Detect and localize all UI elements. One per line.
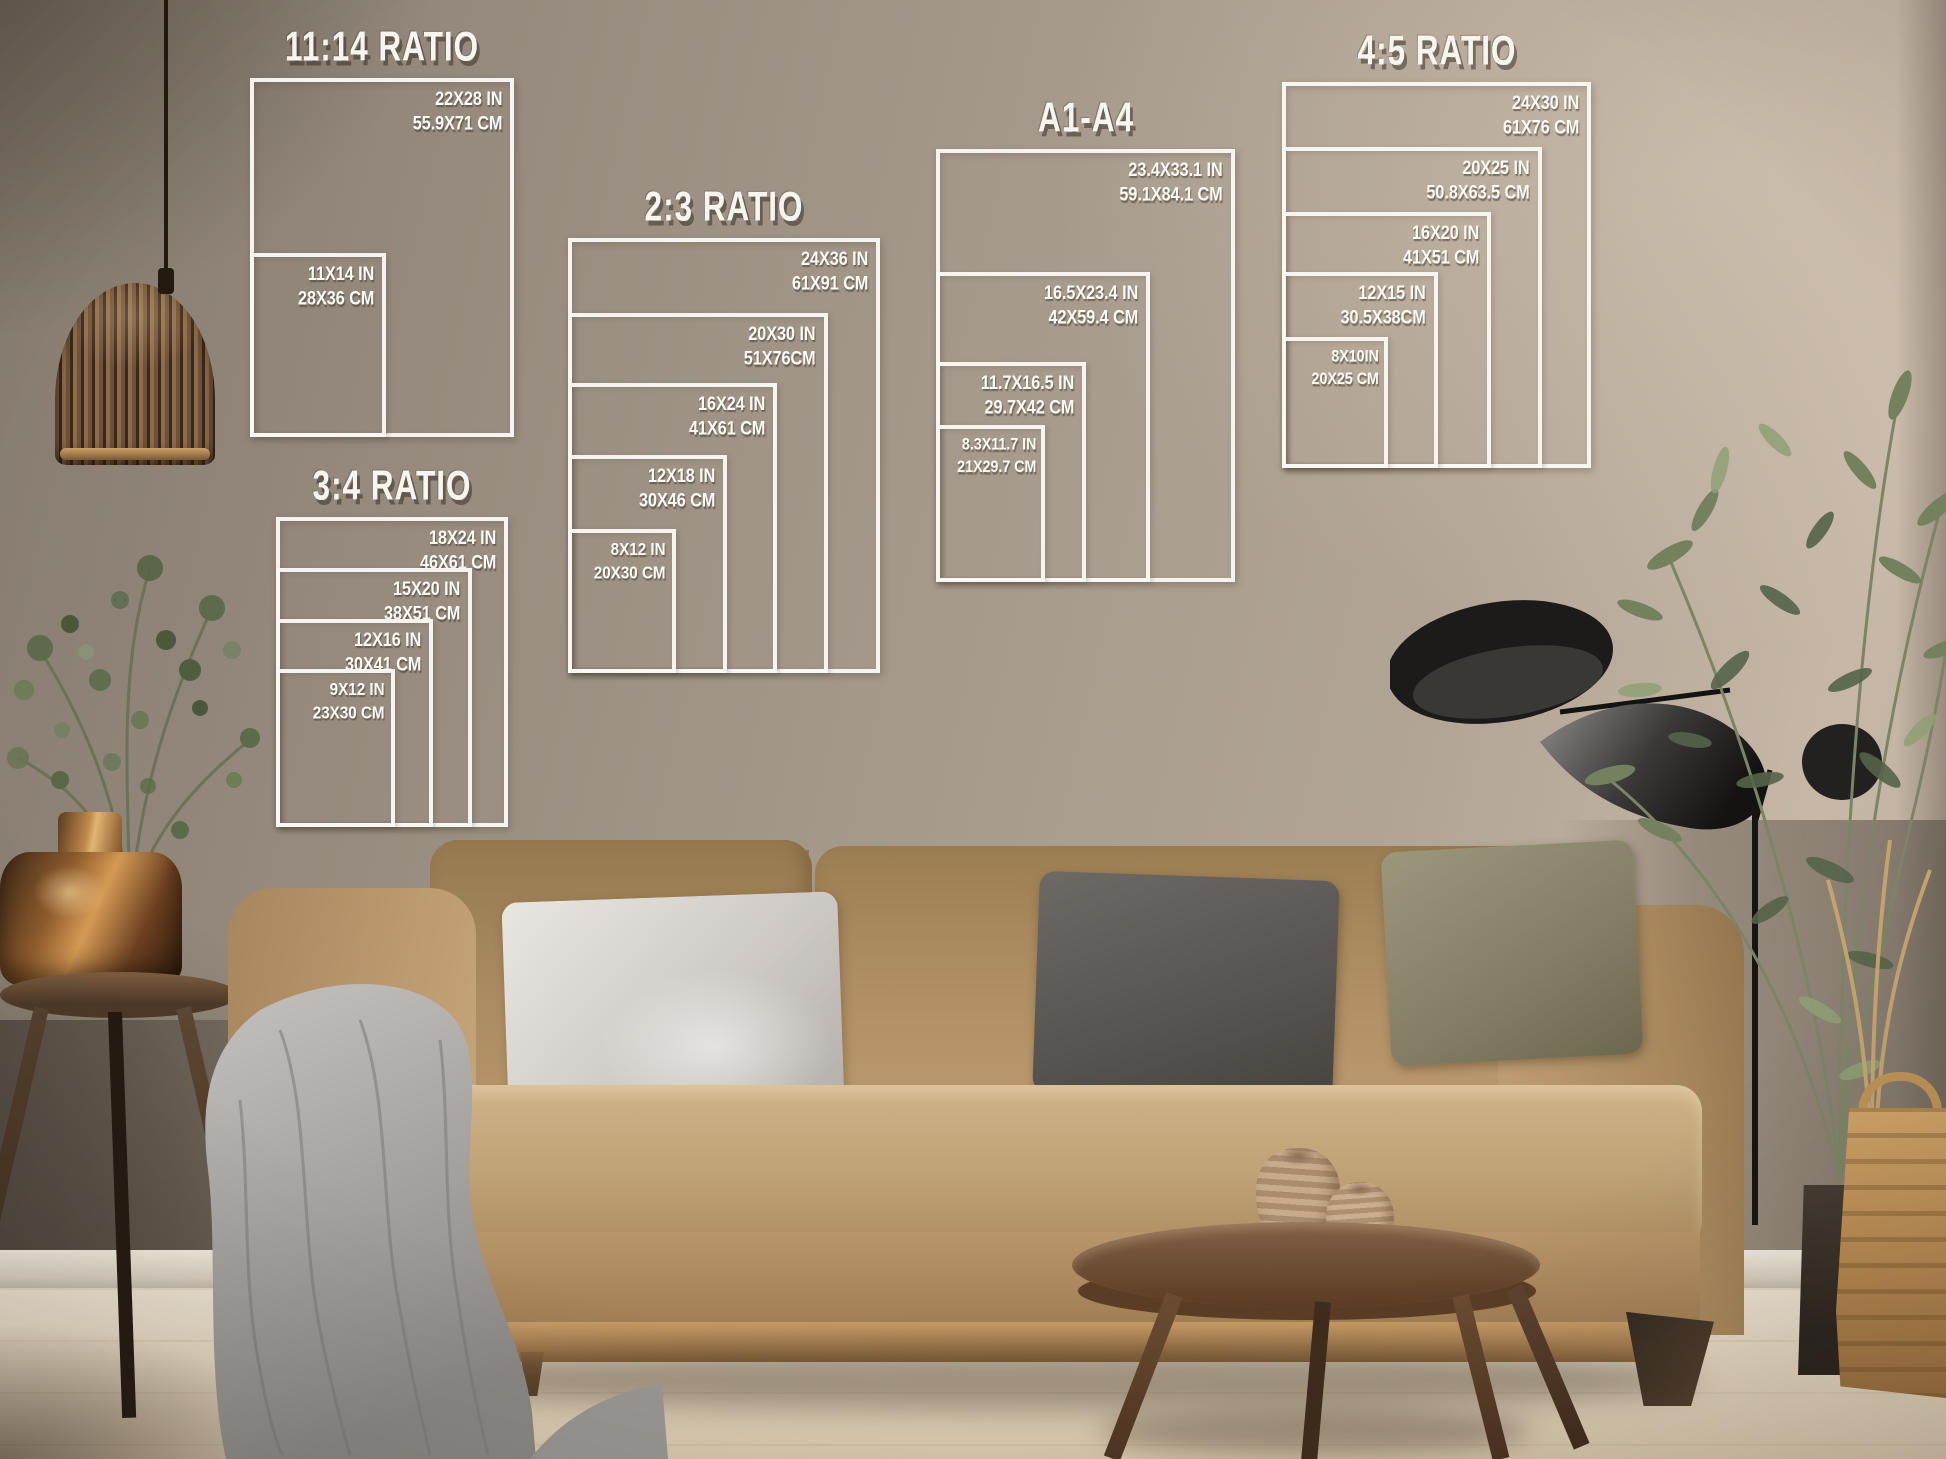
pillow-charcoal: [1032, 871, 1340, 1103]
size-label: 22X28 IN 55.9X71 CM: [412, 87, 502, 137]
pendant-shade-rim: [60, 448, 210, 460]
pendant-socket: [158, 268, 174, 294]
knit-blanket: [190, 950, 670, 1459]
size-label: 8X12 IN 20X30 CM: [594, 538, 666, 585]
chart-title: 4:5 RATIO: [1357, 28, 1516, 76]
living-room-scene: 11:14 RATIO 22X28 IN 55.9X71 CM 11X14 IN…: [0, 0, 1946, 1459]
size-label: 12X18 IN 30X46 CM: [639, 464, 715, 514]
size-label: 8X10IN 20X25 CM: [1312, 346, 1379, 390]
size-frame: 8X10IN 20X25 CM: [1282, 337, 1388, 468]
size-label: 11.7X16.5 IN 29.7X42 CM: [981, 371, 1074, 421]
size-label: 23.4X33.1 IN 59.1X84.1 CM: [1120, 158, 1223, 208]
pillow-olive: [1381, 840, 1644, 1067]
size-label: 20X25 IN 50.8X63.5 CM: [1427, 156, 1530, 206]
size-label: 24X36 IN 61X91 CM: [792, 247, 868, 297]
chart-title: 3:4 RATIO: [313, 463, 472, 511]
size-label: 16X20 IN 41X51 CM: [1403, 221, 1479, 271]
copper-vase-body: [0, 852, 182, 986]
size-label: 20X30 IN 51X76CM: [744, 322, 816, 372]
chart-ratio-2-3: 2:3 RATIO 24X36 IN 61X91 CM 20X30 IN 51X…: [568, 238, 880, 673]
size-label: 24X30 IN 61X76 CM: [1503, 91, 1579, 141]
chart-title: A1-A4: [1037, 95, 1133, 143]
woven-basket: [1836, 1108, 1946, 1398]
size-frame: 8.3X11.7 IN 21X29.7 CM: [936, 425, 1045, 582]
size-label: 11X14 IN 28X36 CM: [298, 262, 374, 312]
chart-a1-a4: A1-A4 23.4X33.1 IN 59.1X84.1 CM 16.5X23.…: [936, 149, 1235, 582]
chart-title: 2:3 RATIO: [645, 184, 804, 232]
size-frame: 9X12 IN 23X30 CM: [276, 669, 395, 827]
chart-ratio-11-14: 11:14 RATIO 22X28 IN 55.9X71 CM 11X14 IN…: [250, 78, 514, 437]
size-frame: 8X12 IN 20X30 CM: [568, 529, 676, 673]
chart-ratio-3-4: 3:4 RATIO 18X24 IN 46X61 CM 15X20 IN 38X…: [276, 517, 508, 827]
size-frame: 11X14 IN 28X36 CM: [250, 253, 386, 437]
pendant-cord: [164, 0, 168, 292]
size-label: 16.5X23.4 IN 42X59.4 CM: [1044, 281, 1138, 331]
chart-title: 11:14 RATIO: [285, 24, 479, 72]
size-label: 16X24 IN 41X61 CM: [689, 392, 765, 442]
table-top: [1072, 1222, 1540, 1308]
size-label: 8.3X11.7 IN 21X29.7 CM: [957, 434, 1036, 478]
size-label: 9X12 IN 23X30 CM: [313, 678, 385, 725]
size-label: 12X15 IN 30.5X38CM: [1341, 281, 1426, 331]
